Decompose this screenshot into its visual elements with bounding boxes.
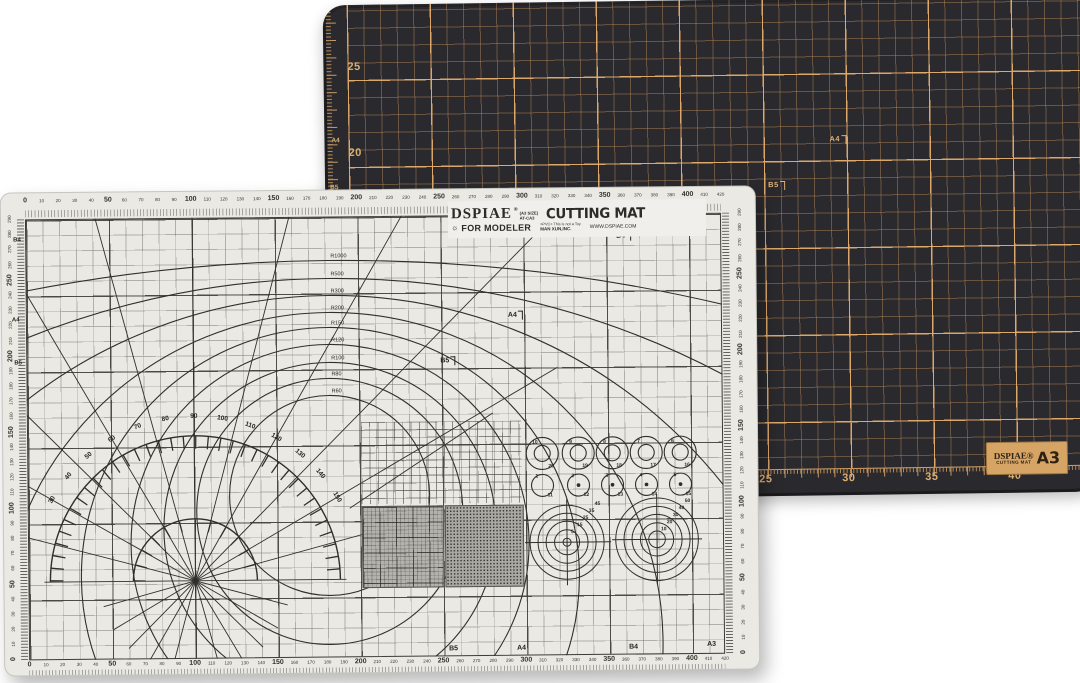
plate-size-text: A3 [1036, 448, 1060, 467]
tagline-text: FOR MODELER [461, 222, 531, 233]
header-row-1: DSPIAE ® (A3 SIZE) AT-CA3 CUTTING MAT [451, 204, 703, 221]
white-cutting-mat: 0102030405060708090100110120130140150160… [0, 185, 760, 676]
header-block: DSPIAE ® (A3 SIZE) AT-CA3 CUTTING MAT ☼ … [448, 199, 706, 238]
model-stack: (A3 SIZE) AT-CA3 [520, 211, 539, 221]
pvc-company-stack: >PVC< This is not a Toy MAN XUN,INC. [540, 222, 581, 232]
paper-size-markers: B4A4B5B4A4B5B5A4B4A3 [1, 186, 760, 675]
model-code: AT-CA3 [520, 216, 539, 221]
header-row-2: ☼ FOR MODELER >PVC< This is not a Toy MA… [451, 220, 703, 232]
product-name: CUTTING MAT [546, 206, 645, 221]
registered-mark: ® [514, 206, 518, 212]
brand-text: DSPIAE [451, 206, 512, 222]
plate-product-text: CUTTING MAT [996, 460, 1031, 465]
gear-icon: ☼ [451, 224, 458, 232]
black-mat-brand-plate: DSPIAE® CUTTING MAT A3 [986, 441, 1068, 475]
company-name: MAN XUN,INC. [540, 226, 581, 232]
website-text: WWW.DSPIAE.COM [590, 223, 637, 229]
